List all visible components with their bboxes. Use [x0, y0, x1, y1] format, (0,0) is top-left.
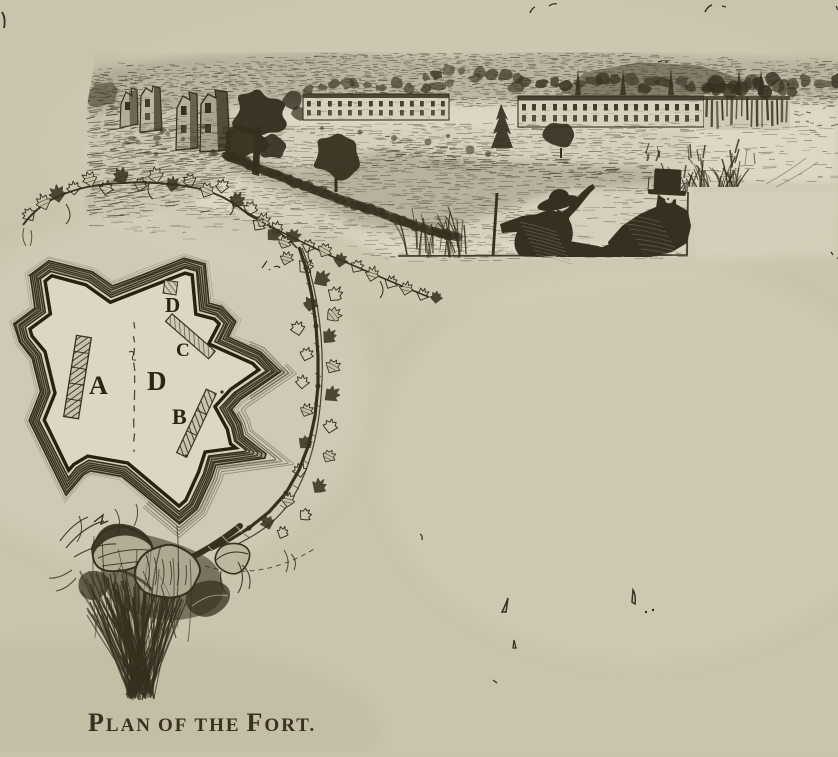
- svg-text:D: D: [165, 293, 180, 317]
- svg-text:A: A: [89, 371, 108, 400]
- svg-text:B: B: [172, 404, 187, 429]
- svg-text:C: C: [176, 340, 190, 361]
- svg-text:D: D: [147, 366, 167, 396]
